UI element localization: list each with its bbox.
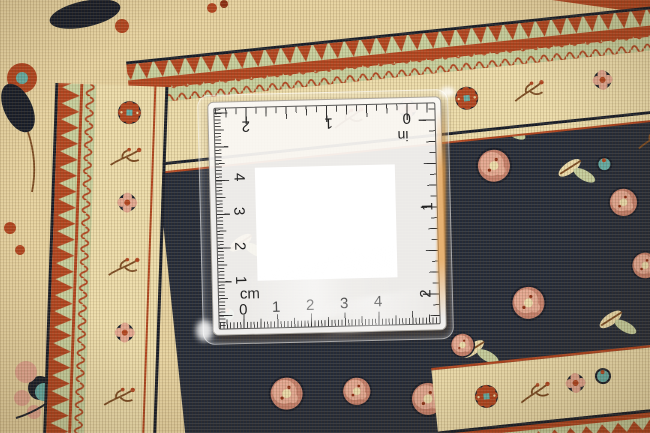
white-balance-patch <box>255 164 398 280</box>
ruler-number: 2 <box>306 297 315 314</box>
ruler-number: 1 <box>419 202 436 211</box>
ruler-number: 2 <box>231 242 248 251</box>
ruler-number: 2 <box>241 117 250 134</box>
ruler-number: 1 <box>272 299 281 316</box>
ruler-number: 1 <box>232 276 249 285</box>
ruler-number: 2 <box>417 289 434 298</box>
ruler-number: 0 <box>402 109 411 126</box>
ruler-card: 2 1 0 in 4 3 2 1 1 2 cm 0 1 2 3 4 <box>207 96 447 336</box>
ruler-number: 1 <box>324 114 333 131</box>
border-left <box>43 83 169 433</box>
carpet-photo-scene: 2 1 0 in 4 3 2 1 1 2 cm 0 1 2 3 4 <box>0 0 650 433</box>
ruler-number: 4 <box>230 173 247 182</box>
ruler-number: 3 <box>230 207 247 216</box>
ruler-number: 4 <box>374 293 383 310</box>
inch-unit-label: in <box>397 128 408 144</box>
measuring-card: 2 1 0 in 4 3 2 1 1 2 cm 0 1 2 3 4 <box>207 96 447 336</box>
ruler-number: 3 <box>340 295 349 312</box>
cm-unit-label: cm <box>240 285 260 302</box>
ruler-number: 0 <box>239 301 248 318</box>
